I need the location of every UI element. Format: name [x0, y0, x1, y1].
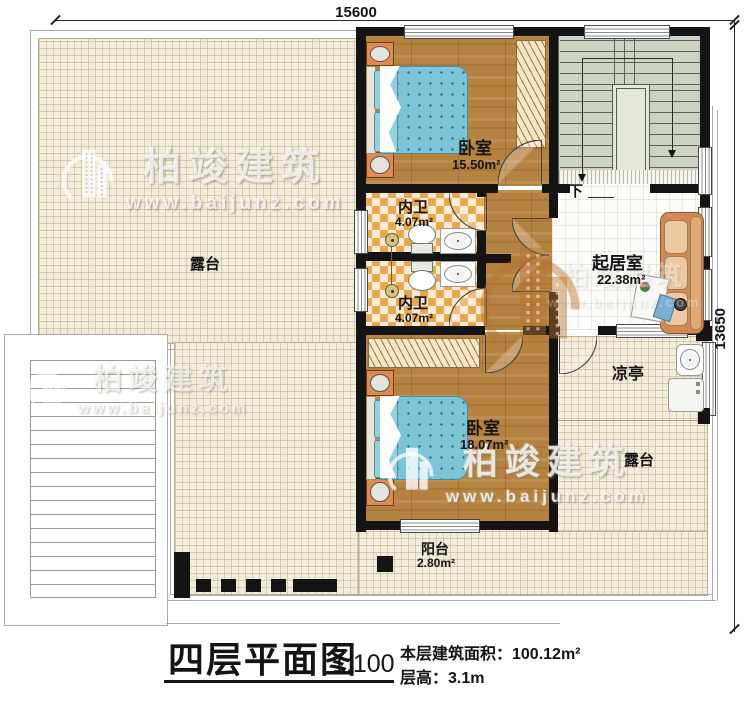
stair-landing — [616, 88, 646, 180]
nightstand-icon — [366, 42, 394, 66]
stair-direction-line — [582, 58, 583, 176]
balcony-wall — [174, 552, 190, 598]
room-label-bath-bottom: 内卫 — [398, 296, 428, 311]
dimension-line-top — [55, 20, 735, 21]
room-label-living: 起居室 — [592, 255, 643, 272]
floor-area-text: 本层建筑面积：100.12m² — [400, 647, 581, 663]
stair-treads — [646, 90, 700, 170]
dimension-width: 15600 — [320, 4, 392, 21]
lower-roof-stripes — [30, 360, 156, 598]
dimension-line-right — [734, 20, 735, 632]
railing-line — [717, 110, 718, 601]
room-label-terrace-right: 露台 — [624, 453, 654, 468]
balcony-wall-dash — [246, 579, 261, 592]
balcony-wall-dash — [293, 579, 337, 592]
stair-treads — [614, 36, 644, 88]
watermark-logo-icon — [478, 238, 588, 358]
window — [354, 210, 368, 254]
decor-bowl-icon — [674, 298, 687, 311]
room-label-bedroom-bottom: 卧室 — [466, 420, 500, 437]
wall — [542, 184, 558, 193]
room-area-bath-top: 4.07m² — [395, 216, 433, 228]
window — [404, 25, 514, 39]
balcony-wall-dash — [271, 579, 286, 592]
door-bedroom-top — [498, 140, 542, 184]
room-label-balcony: 阳台 — [421, 542, 449, 556]
wardrobe-icon — [516, 40, 546, 148]
stair-direction-line — [582, 58, 673, 59]
window — [698, 147, 712, 195]
plan-title: 四层平面图 — [168, 642, 358, 678]
room-area-bath-bottom: 4.07m² — [395, 312, 433, 324]
toilet-tank-icon — [411, 243, 433, 254]
balcony-floor — [358, 528, 708, 596]
terrace-left-lower-floor — [174, 342, 362, 596]
title-underline — [164, 680, 394, 683]
room-label-terrace-left: 露台 — [190, 257, 220, 272]
stair-down-label: 下 — [568, 184, 583, 199]
stair-arrow-icon — [668, 150, 676, 158]
sofa-back-icon — [690, 216, 702, 330]
room-area-bedroom-bottom: 18.07m² — [460, 438, 508, 451]
room-label-bath-top: 内卫 — [398, 200, 428, 215]
room-area-living: 22.38m² — [597, 273, 645, 286]
wall — [356, 326, 485, 335]
wardrobe-icon — [368, 338, 480, 368]
railing-window — [702, 342, 716, 416]
nightstand-icon — [366, 478, 394, 506]
column — [377, 556, 393, 572]
washer-knob-icon — [696, 390, 700, 394]
sofa-cushion-icon — [664, 220, 688, 254]
wall — [356, 521, 402, 530]
nightstand-icon — [366, 370, 394, 396]
toilet-icon — [408, 270, 436, 291]
stair-direction-line — [672, 58, 673, 152]
window — [584, 25, 670, 39]
shower-head-icon — [385, 233, 399, 247]
floor-height-text: 层高：3.1m — [400, 671, 484, 687]
floor-plan-page: 15600 13650 — [0, 0, 750, 704]
window — [400, 519, 480, 533]
wall — [476, 521, 558, 530]
railing-line — [170, 594, 712, 595]
plan-scale: 1:100 — [332, 652, 395, 677]
shower-pipe-icon — [391, 240, 392, 290]
sink-icon — [444, 265, 472, 283]
balcony-wall-dash — [196, 579, 211, 592]
room-label-bedroom-top: 卧室 — [458, 140, 492, 157]
boundary-line — [166, 623, 560, 624]
dimension-height: 13650 — [712, 308, 729, 350]
stair-treads — [560, 90, 614, 170]
balcony-wall-dash — [221, 579, 236, 592]
terrace-left-floor — [38, 38, 360, 344]
railing-line — [170, 344, 171, 594]
railing-line — [166, 600, 716, 601]
room-area-bedroom-top: 15.50m² — [452, 158, 500, 171]
room-label-pavilion: 凉亭 — [612, 367, 644, 383]
window — [354, 268, 368, 312]
door-bath-top — [449, 193, 487, 231]
nightstand-icon — [366, 152, 394, 178]
stair-arrow-icon — [578, 174, 586, 182]
stair-down-underline — [588, 197, 614, 198]
shower-head-icon — [385, 284, 399, 298]
wall — [700, 27, 710, 147]
pavilion-terrace-divider — [556, 420, 706, 421]
room-area-balcony: 2.80m² — [417, 557, 455, 569]
washer-knob-icon — [696, 382, 700, 386]
wall — [700, 193, 710, 207]
sink-icon — [680, 349, 700, 370]
sink-icon — [444, 232, 472, 250]
